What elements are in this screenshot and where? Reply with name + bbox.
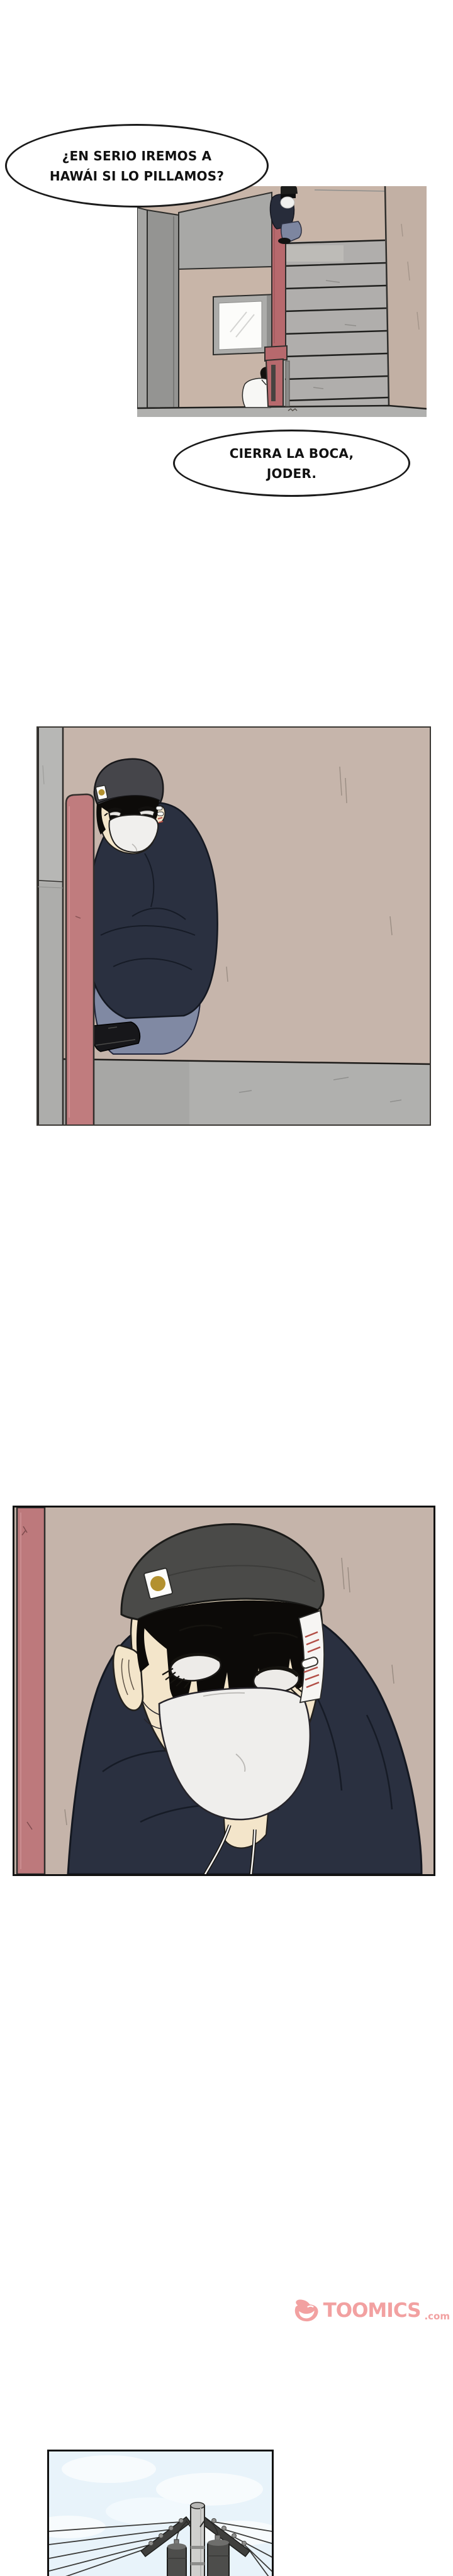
- watermark-suffix-text: .com: [424, 2311, 450, 2322]
- red-pipe: [17, 1507, 45, 1874]
- bubble1-line2: HAWÁI SI LO PILLAMOS?: [50, 169, 224, 184]
- watermark-brand-text: TOOMICS: [323, 2299, 421, 2322]
- panel-stairwell-scene: [137, 186, 427, 417]
- beanie-tag: [96, 786, 108, 801]
- window: [213, 294, 277, 355]
- panel-power-lines-sky: [47, 2450, 274, 2576]
- crouching-figure-drawing: [38, 728, 431, 1126]
- red-pipe-lower: [265, 346, 289, 406]
- webtoon-page: ¿EN SERIO IREMOS A HAWÁI SI LO PILLAMOS?…: [0, 0, 453, 2576]
- red-pipe: [66, 794, 94, 1126]
- stairwell-drawing: [137, 186, 427, 417]
- speech-bubble-1: ¿EN SERIO IREMOS A HAWÁI SI LO PILLAMOS?: [5, 124, 269, 208]
- watermark: TOOMICS .com: [293, 2294, 450, 2327]
- bubble2-line2: JODER.: [267, 466, 316, 481]
- power-pole-drawing: [49, 2451, 274, 2576]
- panel-closeup-face: [13, 1506, 435, 1876]
- closeup-face-drawing: [14, 1507, 433, 1874]
- door: [137, 208, 179, 417]
- toomics-devil-icon: [293, 2296, 320, 2325]
- right-wall: [385, 186, 427, 417]
- speech-bubble-2-text: CIERRA LA BOCA, JODER.: [230, 443, 354, 484]
- floor: [38, 1058, 431, 1126]
- speech-bubble-1-text: ¿EN SERIO IREMOS A HAWÁI SI LO PILLAMOS?: [50, 146, 224, 186]
- bubble2-line1: CIERRA LA BOCA,: [230, 446, 354, 461]
- gray-pole: [38, 728, 63, 1126]
- speech-bubble-2: CIERRA LA BOCA, JODER.: [173, 430, 410, 497]
- bubble1-line1: ¿EN SERIO IREMOS A: [62, 148, 212, 164]
- panel-crouching-figure: [36, 726, 431, 1126]
